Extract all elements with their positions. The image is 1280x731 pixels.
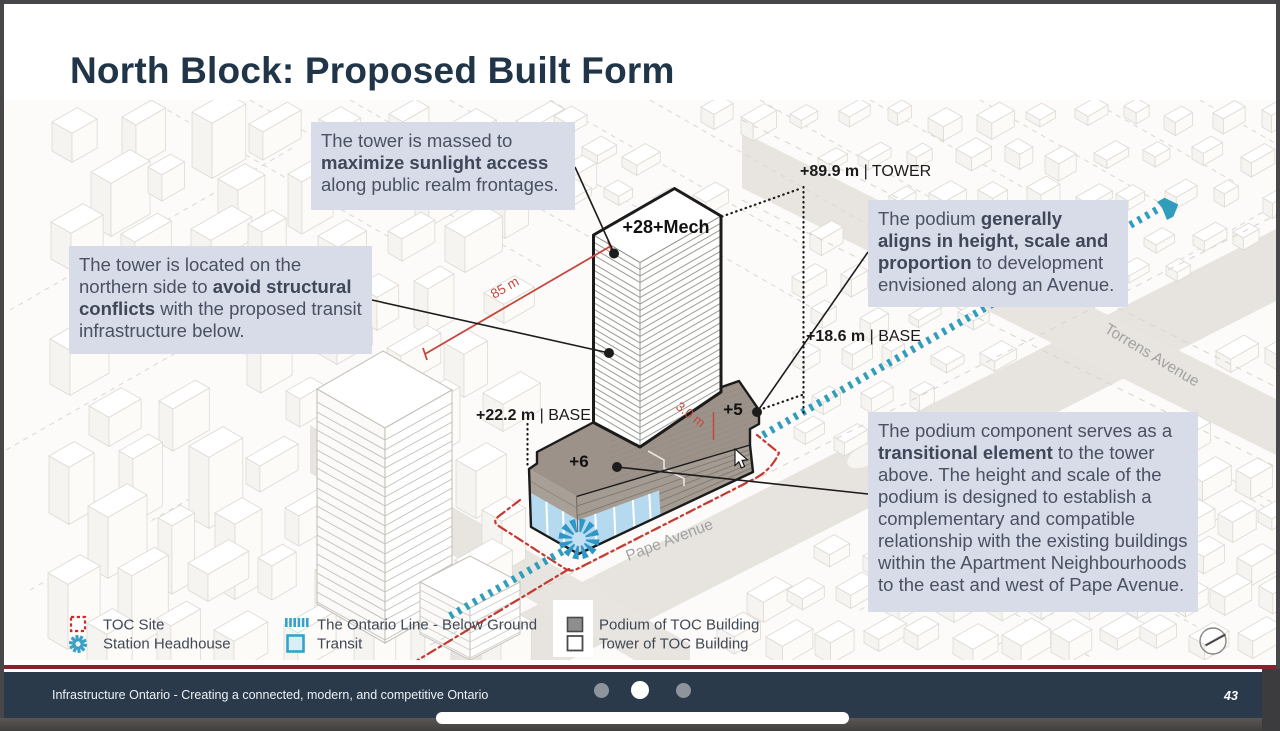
svg-text:+28+Mech: +28+Mech	[622, 217, 709, 237]
svg-text:Podium of TOC Building: Podium of TOC Building	[599, 617, 759, 634]
svg-text:Tower of TOC Building: Tower of TOC Building	[599, 636, 749, 653]
svg-text:+18.6 m | BASE: +18.6 m | BASE	[806, 328, 921, 345]
svg-text:+89.9 m | TOWER: +89.9 m | TOWER	[800, 163, 931, 180]
svg-text:+22.2 m | BASE: +22.2 m | BASE	[476, 407, 591, 424]
svg-text:Station Headhouse: Station Headhouse	[103, 636, 231, 653]
svg-text:The Ontario Line - Below Groun: The Ontario Line - Below Ground	[317, 617, 537, 634]
svg-text:TOC Site: TOC Site	[103, 617, 164, 634]
svg-text:+5: +5	[723, 400, 742, 419]
svg-text:+6: +6	[569, 452, 588, 471]
svg-text:Transit: Transit	[317, 636, 363, 653]
